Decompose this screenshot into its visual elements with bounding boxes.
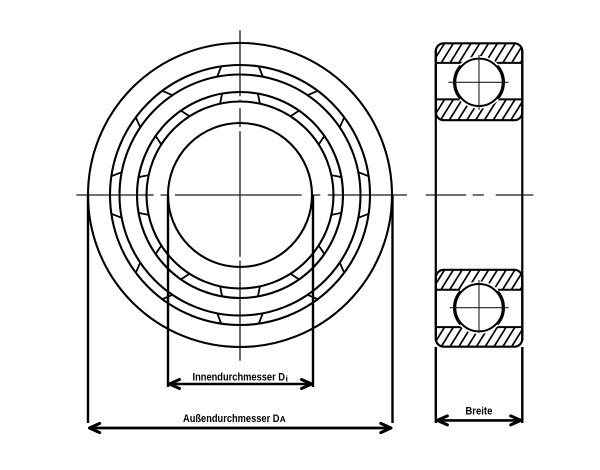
svg-text:Breite: Breite — [465, 406, 492, 418]
svg-text:Außendurchmesser D: Außendurchmesser D — [183, 413, 280, 425]
svg-text:i: i — [286, 374, 288, 383]
svg-text:Innendurchmesser D: Innendurchmesser D — [193, 371, 286, 383]
svg-text:A: A — [280, 415, 286, 424]
